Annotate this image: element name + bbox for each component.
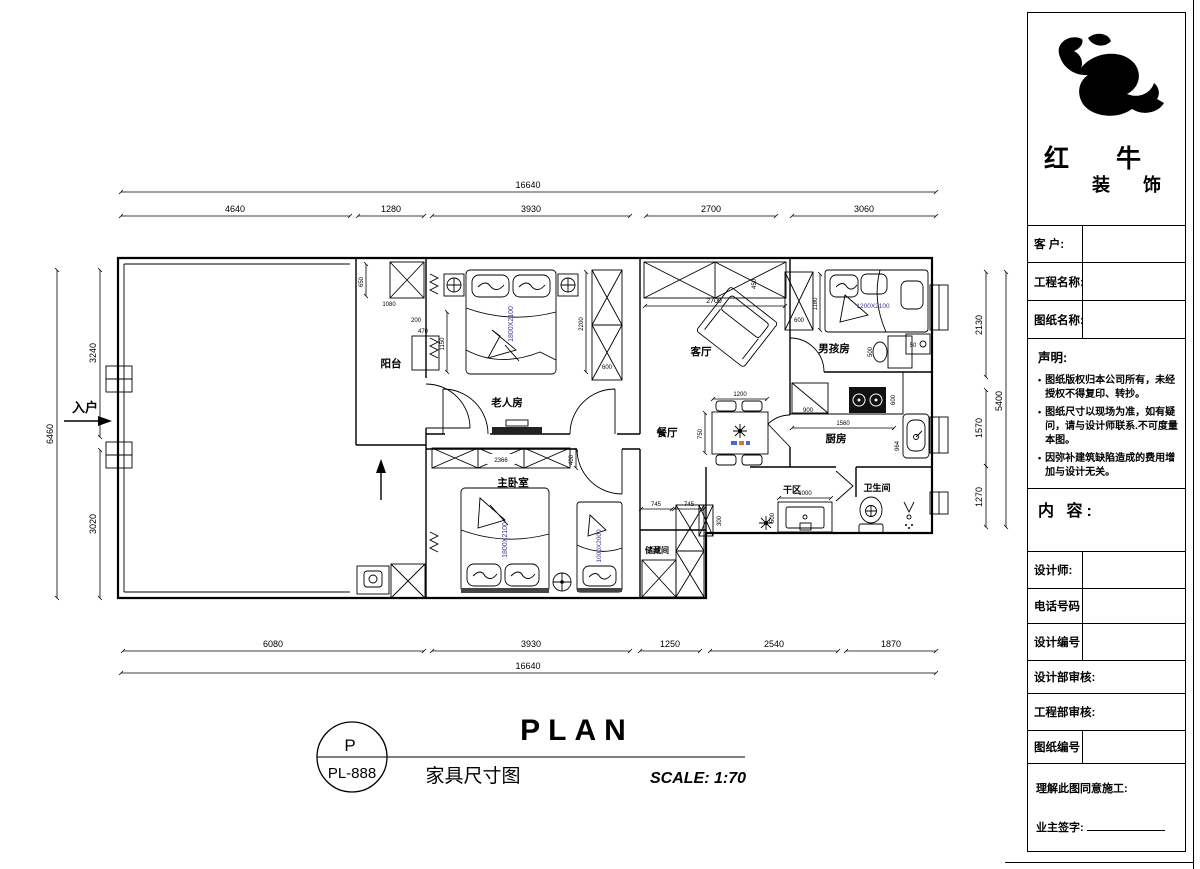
bullet-icon: • — [1038, 406, 1041, 448]
dim-right-2: 1270 — [974, 487, 984, 507]
folding-door-icon — [836, 471, 853, 501]
dim-650: 650 — [359, 276, 365, 287]
scale-label: SCALE: 1:70 — [650, 770, 746, 787]
bullet-icon: • — [1038, 452, 1041, 480]
phone-label: 电话号码 — [1028, 589, 1083, 623]
design-review-label: 设计部审核: — [1028, 661, 1185, 693]
customer-label: 客 户: — [1028, 226, 1083, 262]
drawing-letter: P — [344, 736, 355, 755]
phone-value — [1083, 589, 1185, 623]
water-heater-label: 50 — [910, 343, 917, 349]
content-section: 内 容: — [1028, 489, 1185, 552]
dim-1200: 1200 — [733, 392, 747, 398]
boy-bed-icon — [825, 270, 928, 332]
dim-bottom-overall: 16640 — [515, 661, 540, 671]
dim-300: 300 — [717, 515, 723, 526]
plan-title: PLAN — [520, 714, 634, 747]
room-elder: 1800X2100 1150 2200 600 老人房 — [430, 270, 622, 552]
dim-1000: 1000 — [798, 491, 812, 497]
dim-1150: 1150 — [440, 337, 446, 351]
dim-right-0: 2130 — [974, 315, 984, 335]
elder-bed-size: 1800X2100 — [508, 306, 515, 342]
agree-label: 理解此图同意施工: — [1036, 780, 1177, 796]
room-label-master: 主卧室 — [497, 476, 529, 489]
dim-745a: 745 — [651, 502, 662, 508]
statement-text: 图纸版权归本公司所有，未经授权不得复印、转抄。 — [1045, 374, 1179, 402]
dim-2366: 2366 — [494, 458, 508, 464]
master-bed-size: 1800X2100 — [502, 522, 509, 558]
floor-plan-drawing: 650 1080 200 470 阳台 1800X2100 1150 2200 … — [0, 0, 1200, 869]
customer-value — [1083, 226, 1185, 262]
dim-500-desk: 500 — [868, 346, 874, 357]
sheet-number-value — [1083, 731, 1185, 763]
title-bar: P PL-888 PLAN 家具尺寸图 SCALE: 1:70 — [317, 714, 746, 792]
dim-top-2: 3930 — [521, 204, 541, 214]
dim-1180: 1180 — [813, 297, 819, 311]
room-boy: 1200X2100 600 1180 500 50 男孩房 — [785, 270, 930, 368]
logo-section: 红 牛 装 饰 — [1028, 13, 1185, 226]
drawing-code: PL-888 — [328, 765, 376, 782]
washing-machine-icon — [357, 566, 389, 594]
dim-left-1: 3020 — [88, 514, 98, 534]
room-living: 450 2700 客厅 — [644, 262, 786, 368]
room-label-kitchen: 厨房 — [826, 432, 847, 445]
row-design-number: 设计编号 — [1028, 624, 1185, 661]
row-engineering-review: 工程部审核: — [1028, 694, 1185, 731]
owner-sign-label: 业主签字: — [1036, 822, 1084, 834]
dim-600-kitchen: 600 — [891, 394, 897, 405]
drawing-sheet: 650 1080 200 470 阳台 1800X2100 1150 2200 … — [0, 0, 1200, 869]
room-master: 2366 400 主卧室 1800X2100 1000X2000 — [432, 448, 622, 593]
dim-bottom-1: 3930 — [521, 639, 541, 649]
boy-bed-size: 1200X2100 — [856, 303, 890, 310]
dim-470: 470 — [418, 329, 429, 335]
room-dining: 餐厅 1200 750 — [656, 392, 769, 465]
content-heading: 内 容: — [1038, 503, 1096, 520]
tv-icon — [492, 427, 542, 434]
statement-section: 声明: • 图纸版权归本公司所有，未经授权不得复印、转抄。 • 图纸尺寸以现场为… — [1028, 339, 1185, 489]
dim-top-3: 2700 — [701, 204, 721, 214]
dim-1560: 1560 — [836, 421, 850, 427]
dim-964: 964 — [895, 440, 901, 451]
row-design-review: 设计部审核: — [1028, 661, 1185, 694]
shower-icon — [904, 502, 914, 529]
sheet-number-label: 图纸编号 — [1028, 731, 1083, 763]
dim-right-1: 1570 — [974, 418, 984, 438]
plant-icon — [733, 424, 747, 438]
dim-bottom-2: 1250 — [660, 639, 680, 649]
drawing-name: 家具尺寸图 — [425, 765, 520, 787]
brand-subname: 装 饰 — [1092, 171, 1175, 197]
project-name-value — [1083, 263, 1185, 300]
room-kitchen: 900 1560 600 964 厨房 — [790, 372, 929, 458]
room-label-elder: 老人房 — [490, 396, 523, 409]
entry-marker: 入户 — [64, 400, 112, 426]
dim-200: 200 — [411, 318, 422, 324]
brand-name: 红 牛 — [1044, 139, 1161, 175]
stove-icon — [849, 387, 886, 413]
dim-1080: 1080 — [382, 302, 396, 308]
dim-600-boy: 600 — [794, 318, 805, 324]
dim-745b: 745 — [684, 502, 695, 508]
room-label-boy: 男孩房 — [818, 342, 850, 355]
chair-icon — [873, 342, 887, 362]
designer-label: 设计师: — [1028, 552, 1083, 588]
room-label-bath: 卫生间 — [863, 482, 890, 493]
dim-bottom-4: 1870 — [881, 639, 901, 649]
statement-text: 图纸尺寸以现场为准，如有疑问，请与设计师联系.不可度量本图。 — [1045, 406, 1179, 448]
radiator-icon — [430, 274, 438, 552]
room-label-storage: 储藏间 — [644, 545, 669, 555]
design-number-label: 设计编号 — [1028, 624, 1083, 660]
engineering-review-label: 工程部审核: — [1028, 694, 1185, 730]
single-bed-size: 1000X2000 — [596, 529, 603, 563]
statement-text: 因弥补建筑缺陷造成的费用增加与设计无关。 — [1045, 452, 1179, 480]
statement-item: • 图纸尺寸以现场为准，如有疑问，请与设计师联系.不可度量本图。 — [1038, 406, 1179, 448]
room-bath: 卫生间 — [859, 482, 914, 533]
room-label-living: 客厅 — [690, 345, 712, 358]
drawing-name-value — [1083, 301, 1185, 338]
sheet-border-bottom — [1005, 862, 1193, 863]
room-label-balcony: 阳台 — [381, 357, 402, 370]
row-drawing-name: 图纸名称: — [1028, 301, 1185, 339]
row-sheet-number: 图纸编号 — [1028, 731, 1185, 764]
statement-item: • 图纸版权归本公司所有，未经授权不得复印、转抄。 — [1038, 374, 1179, 402]
bullet-icon: • — [1038, 374, 1041, 402]
dim-bottom-0: 6080 — [263, 639, 283, 649]
room-storage: 745 745 储藏间 — [641, 502, 704, 597]
statement-item: • 因弥补建筑缺陷造成的费用增加与设计无关。 — [1038, 452, 1179, 480]
dim-750: 750 — [698, 428, 704, 439]
dim-top-0: 4640 — [225, 204, 245, 214]
dim-2200: 2200 — [579, 317, 585, 331]
room-label-dining: 餐厅 — [656, 426, 678, 439]
dim-top-1: 1280 — [381, 204, 401, 214]
dim-600-wardrobe: 600 — [602, 365, 613, 371]
sheet-border-right — [1193, 0, 1194, 869]
room-dry: 干区 1000 500 300 — [699, 485, 832, 536]
project-name-label: 工程名称: — [1028, 263, 1083, 300]
dim-top-overall: 16640 — [515, 180, 540, 190]
dim-450: 450 — [752, 278, 758, 289]
drawing-name-label: 图纸名称: — [1028, 301, 1083, 338]
bull-logo-icon — [1044, 31, 1170, 123]
dim-top-4: 3060 — [854, 204, 874, 214]
row-project-name: 工程名称: — [1028, 263, 1185, 301]
dim-400: 400 — [569, 454, 575, 465]
dim-bottom-3: 2540 — [764, 639, 784, 649]
row-customer: 客 户: — [1028, 226, 1185, 263]
dim-right-overall: 5400 — [994, 391, 1004, 411]
row-phone: 电话号码 — [1028, 589, 1185, 624]
dim-left-overall: 6460 — [45, 424, 55, 444]
dim-2700: 2700 — [706, 298, 722, 305]
statement-heading: 声明: — [1038, 347, 1179, 366]
dim-500-basin: 500 — [770, 512, 776, 523]
design-number-value — [1083, 624, 1185, 660]
dim-900: 900 — [803, 408, 814, 414]
plant-icon — [759, 516, 773, 530]
footer-section: 理解此图同意施工: 业主签字: — [1028, 764, 1185, 851]
row-designer: 设计师: — [1028, 552, 1185, 589]
designer-value — [1083, 552, 1185, 588]
dim-left-0: 3240 — [88, 343, 98, 363]
desk-icon — [888, 336, 912, 368]
entry-label: 入户 — [72, 400, 98, 415]
signature-line — [1087, 818, 1165, 831]
title-block: 红 牛 装 饰 客 户: 工程名称: 图纸名称: 声明: • 图纸版权归本公司所… — [1027, 12, 1186, 852]
